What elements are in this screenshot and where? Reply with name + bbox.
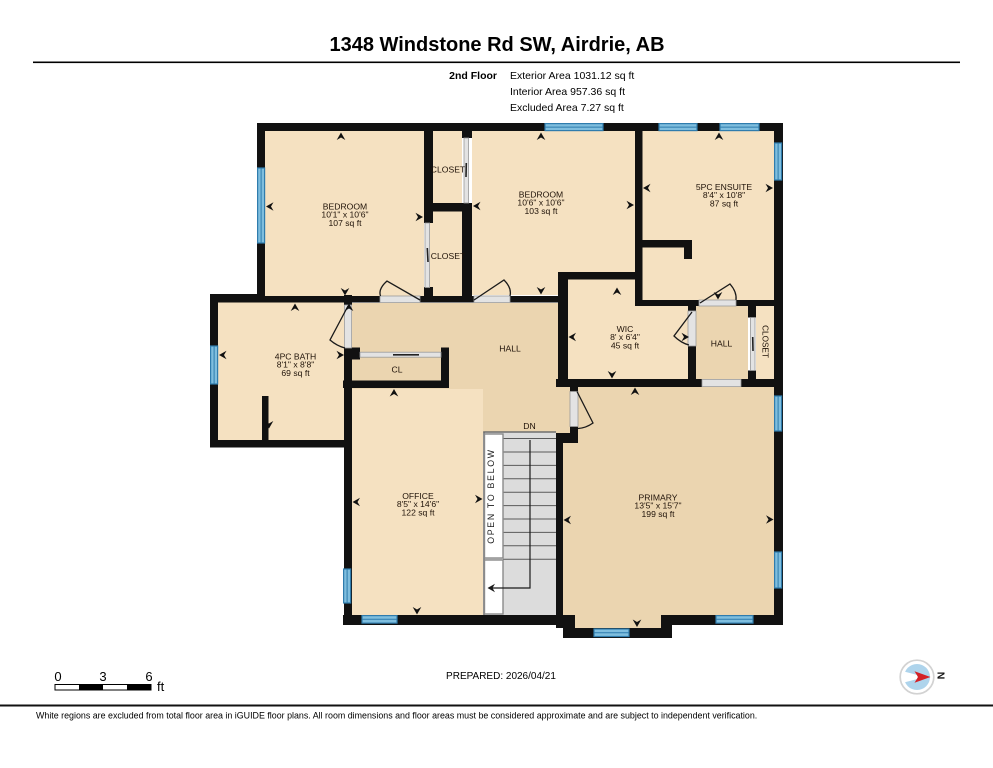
svg-text:DN: DN	[523, 421, 535, 431]
svg-text:CLOSET: CLOSET	[761, 325, 770, 358]
svg-text:107 sq ft: 107 sq ft	[329, 218, 363, 228]
svg-text:OPEN TO BELOW: OPEN TO BELOW	[486, 448, 496, 544]
svg-text:Excluded Area 7.27 sq ft: Excluded Area 7.27 sq ft	[510, 102, 624, 114]
svg-text:N: N	[935, 672, 947, 680]
svg-text:0: 0	[54, 669, 61, 684]
svg-text:122 sq ft: 122 sq ft	[402, 507, 436, 517]
svg-text:Interior Area 957.36 sq ft: Interior Area 957.36 sq ft	[510, 86, 625, 98]
svg-text:2nd Floor: 2nd Floor	[449, 70, 497, 82]
svg-text:1348 Windstone Rd SW, Airdrie,: 1348 Windstone Rd SW, Airdrie, AB	[329, 34, 664, 56]
svg-text:87 sq ft: 87 sq ft	[710, 198, 739, 208]
svg-text:PREPARED: 2026/04/21: PREPARED: 2026/04/21	[446, 671, 556, 682]
svg-text:69 sq ft: 69 sq ft	[281, 368, 310, 378]
svg-text:CL: CL	[392, 364, 403, 374]
svg-text:6: 6	[145, 669, 152, 684]
svg-text:ft: ft	[157, 679, 165, 694]
svg-text:45 sq ft: 45 sq ft	[611, 340, 640, 350]
svg-text:103 sq ft: 103 sq ft	[525, 206, 559, 216]
svg-text:Exterior Area 1031.12 sq ft: Exterior Area 1031.12 sq ft	[510, 70, 634, 82]
svg-text:199 sq ft: 199 sq ft	[642, 509, 676, 519]
svg-text:HALL: HALL	[499, 344, 521, 354]
svg-text:3: 3	[99, 669, 106, 684]
svg-text:White regions are excluded fro: White regions are excluded from total fl…	[36, 711, 757, 721]
svg-text:HALL: HALL	[711, 339, 733, 349]
svg-text:CLOSET: CLOSET	[431, 165, 466, 175]
svg-text:CLOSET: CLOSET	[431, 251, 466, 261]
